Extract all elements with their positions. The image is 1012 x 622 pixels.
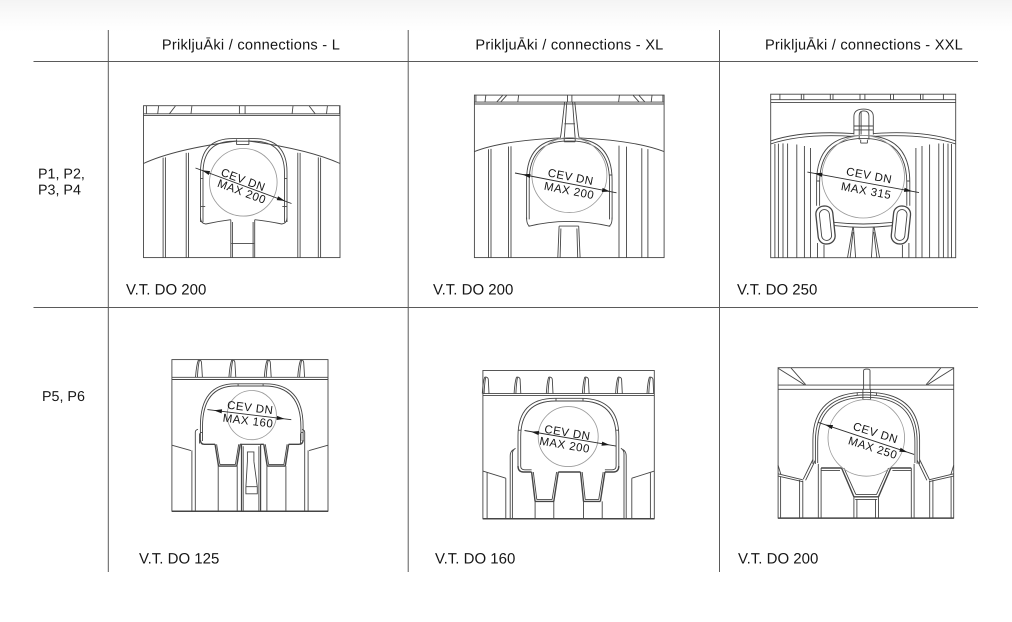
- svg-text:V.T. DO 250: V.T. DO 250: [737, 282, 817, 299]
- svg-text:V.T. DO 200: V.T. DO 200: [433, 282, 513, 299]
- svg-text:P5, P6: P5, P6: [42, 389, 85, 405]
- svg-text:PrikljuĀki / connections - XL: PrikljuĀki / connections - XL: [475, 37, 663, 54]
- svg-text:PrikljuĀki / connections - L: PrikljuĀki / connections - L: [162, 37, 340, 54]
- svg-text:PrikljuĀki / connections - XXL: PrikljuĀki / connections - XXL: [765, 37, 963, 54]
- svg-text:V.T. DO 160: V.T. DO 160: [435, 551, 515, 568]
- svg-text:V.T. DO 125: V.T. DO 125: [139, 551, 219, 568]
- svg-text:V.T. DO 200: V.T. DO 200: [738, 551, 818, 568]
- svg-text:P1, P2,: P1, P2,: [38, 167, 85, 183]
- svg-text:V.T. DO 200: V.T. DO 200: [126, 282, 206, 299]
- svg-text:P3, P4: P3, P4: [38, 183, 81, 199]
